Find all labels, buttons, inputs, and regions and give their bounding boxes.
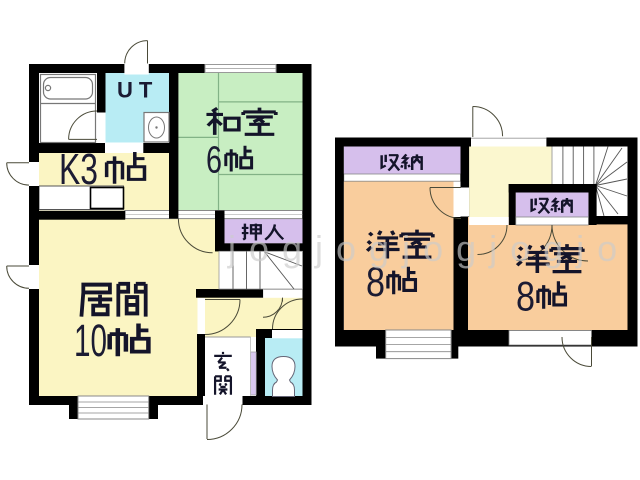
svg-text:6: 6 [206, 140, 222, 182]
svg-text:jogjogjogjogjo: jogjogjogjogjo [227, 228, 630, 269]
svg-text:10: 10 [74, 315, 107, 366]
svg-text:UT: UT [117, 78, 158, 103]
svg-text:8: 8 [516, 273, 535, 320]
svg-text:K3: K3 [59, 145, 98, 194]
